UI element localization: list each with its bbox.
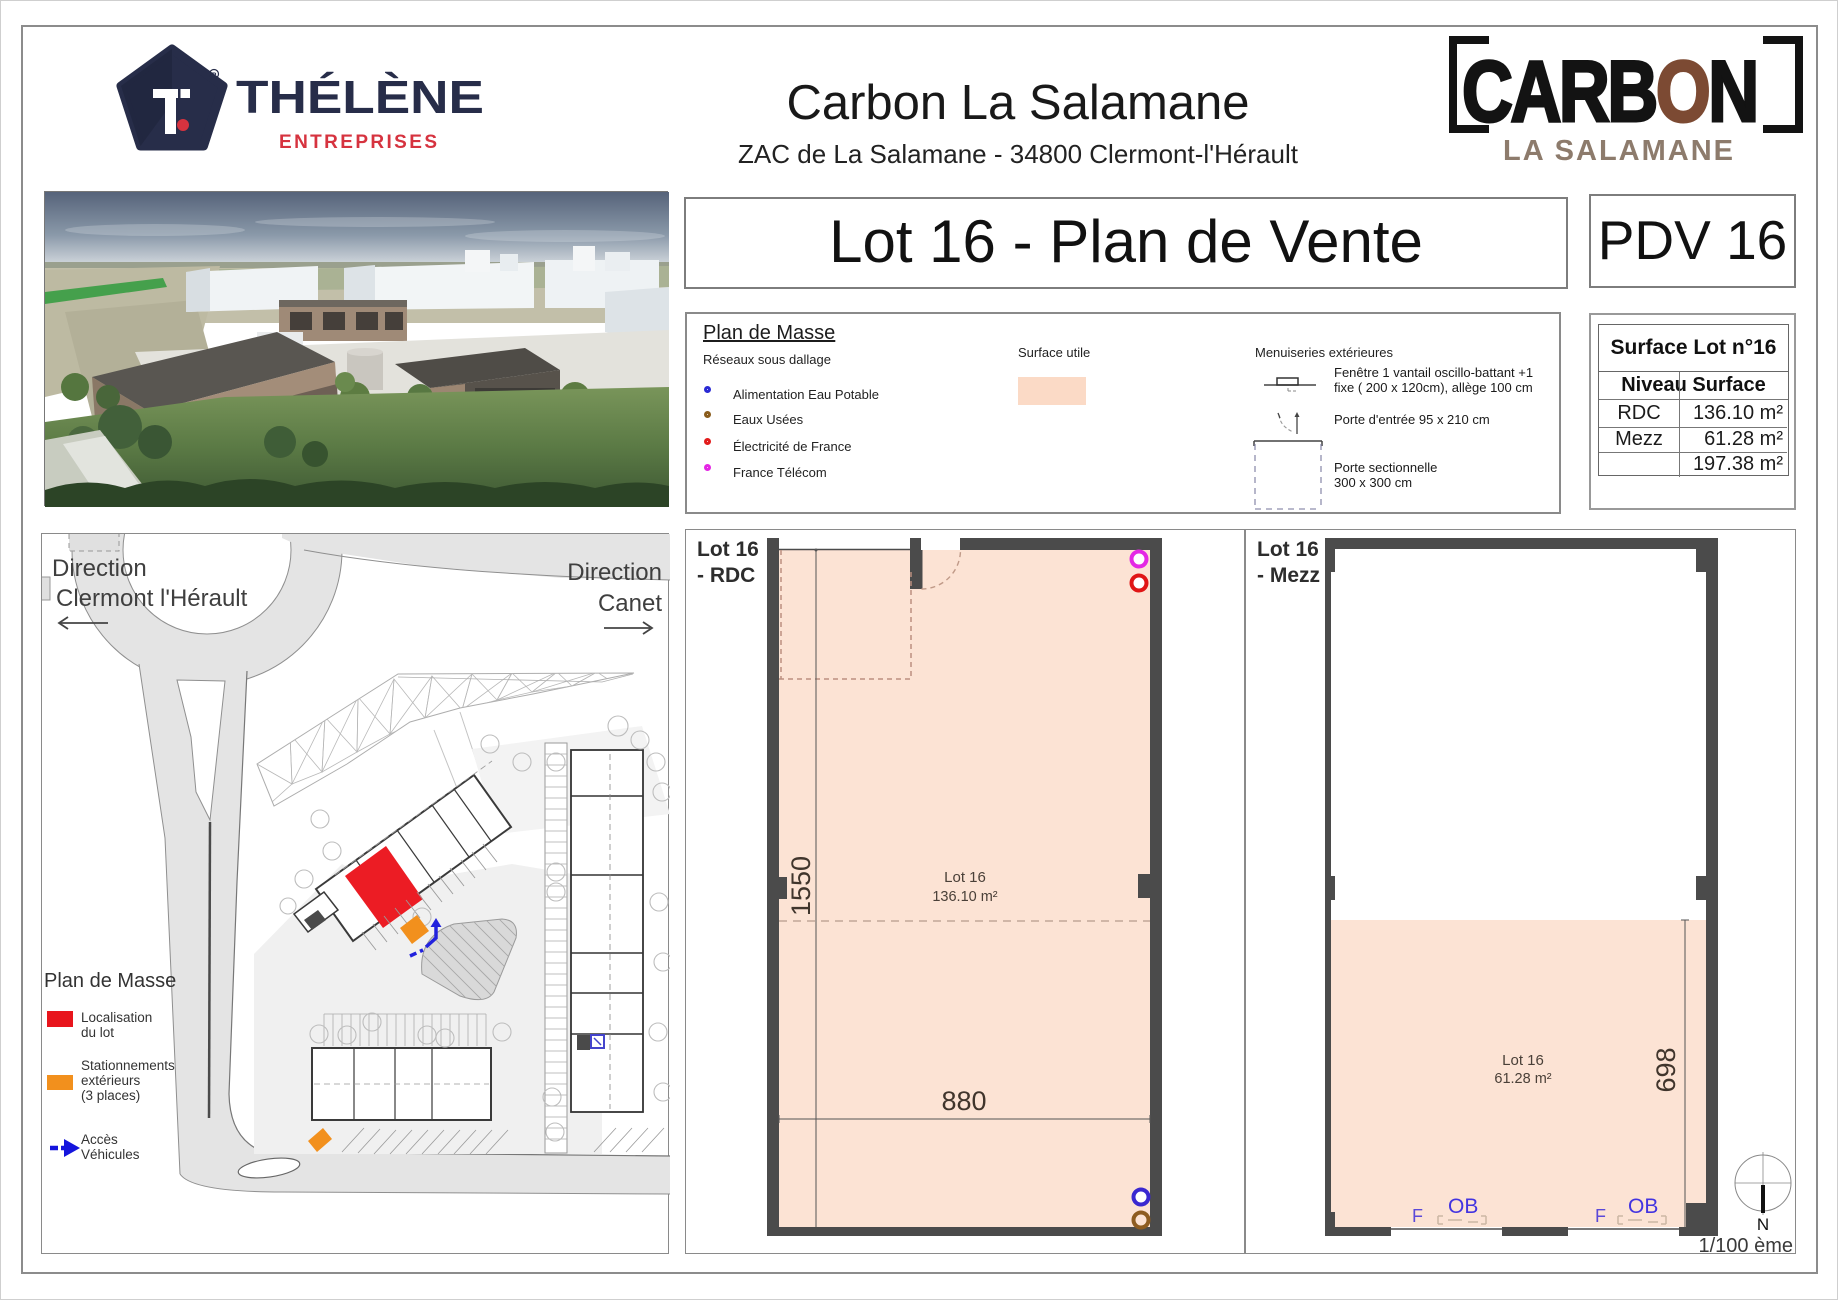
svg-text:OB: OB (1628, 1195, 1658, 1218)
svg-text:Accès: Accès (81, 1132, 118, 1147)
svg-text:F: F (1412, 1206, 1423, 1226)
svg-text:698: 698 (1651, 1047, 1681, 1092)
svg-text:61.28 m²: 61.28 m² (1494, 1071, 1551, 1087)
svg-text:Direction: Direction (52, 555, 147, 582)
svg-text:CARBON: CARBON (1462, 43, 1757, 139)
svg-text:Direction: Direction (567, 559, 662, 586)
svg-text:880: 880 (941, 1086, 986, 1116)
svg-text:- RDC: - RDC (697, 564, 755, 587)
svg-text:- Mezz: - Mezz (1257, 564, 1320, 587)
svg-text:R: R (211, 73, 216, 80)
svg-text:N: N (1757, 1215, 1769, 1234)
svg-text:OB: OB (1448, 1195, 1478, 1218)
svg-text:Clermont l'Hérault: Clermont l'Hérault (56, 585, 248, 612)
svg-text:THÉLÈNE: THÉLÈNE (236, 71, 484, 123)
svg-text:Localisation: Localisation (81, 1010, 152, 1025)
svg-text:Lot 16: Lot 16 (1502, 1052, 1544, 1069)
svg-text:Véhicules: Véhicules (81, 1147, 140, 1162)
svg-text:Lot 16: Lot 16 (944, 869, 986, 886)
svg-text:1550: 1550 (786, 856, 816, 916)
svg-text:Lot 16: Lot 16 (1257, 538, 1319, 561)
svg-text:1/100 ème: 1/100 ème (1698, 1235, 1793, 1254)
svg-text:Lot 16: Lot 16 (697, 538, 759, 561)
svg-text:F: F (1595, 1206, 1606, 1226)
svg-text:Plan de Masse: Plan de Masse (44, 970, 176, 992)
svg-text:du lot: du lot (81, 1025, 114, 1040)
svg-text:extérieurs: extérieurs (81, 1073, 141, 1088)
svg-text:Canet: Canet (598, 590, 662, 617)
svg-text:(3 places): (3 places) (81, 1088, 140, 1103)
svg-text:Stationnements: Stationnements (81, 1058, 175, 1073)
svg-text:136.10 m²: 136.10 m² (932, 889, 997, 905)
svg-text:LA SALAMANE: LA SALAMANE (1503, 135, 1735, 167)
svg-text:ENTREPRISES: ENTREPRISES (279, 132, 437, 153)
